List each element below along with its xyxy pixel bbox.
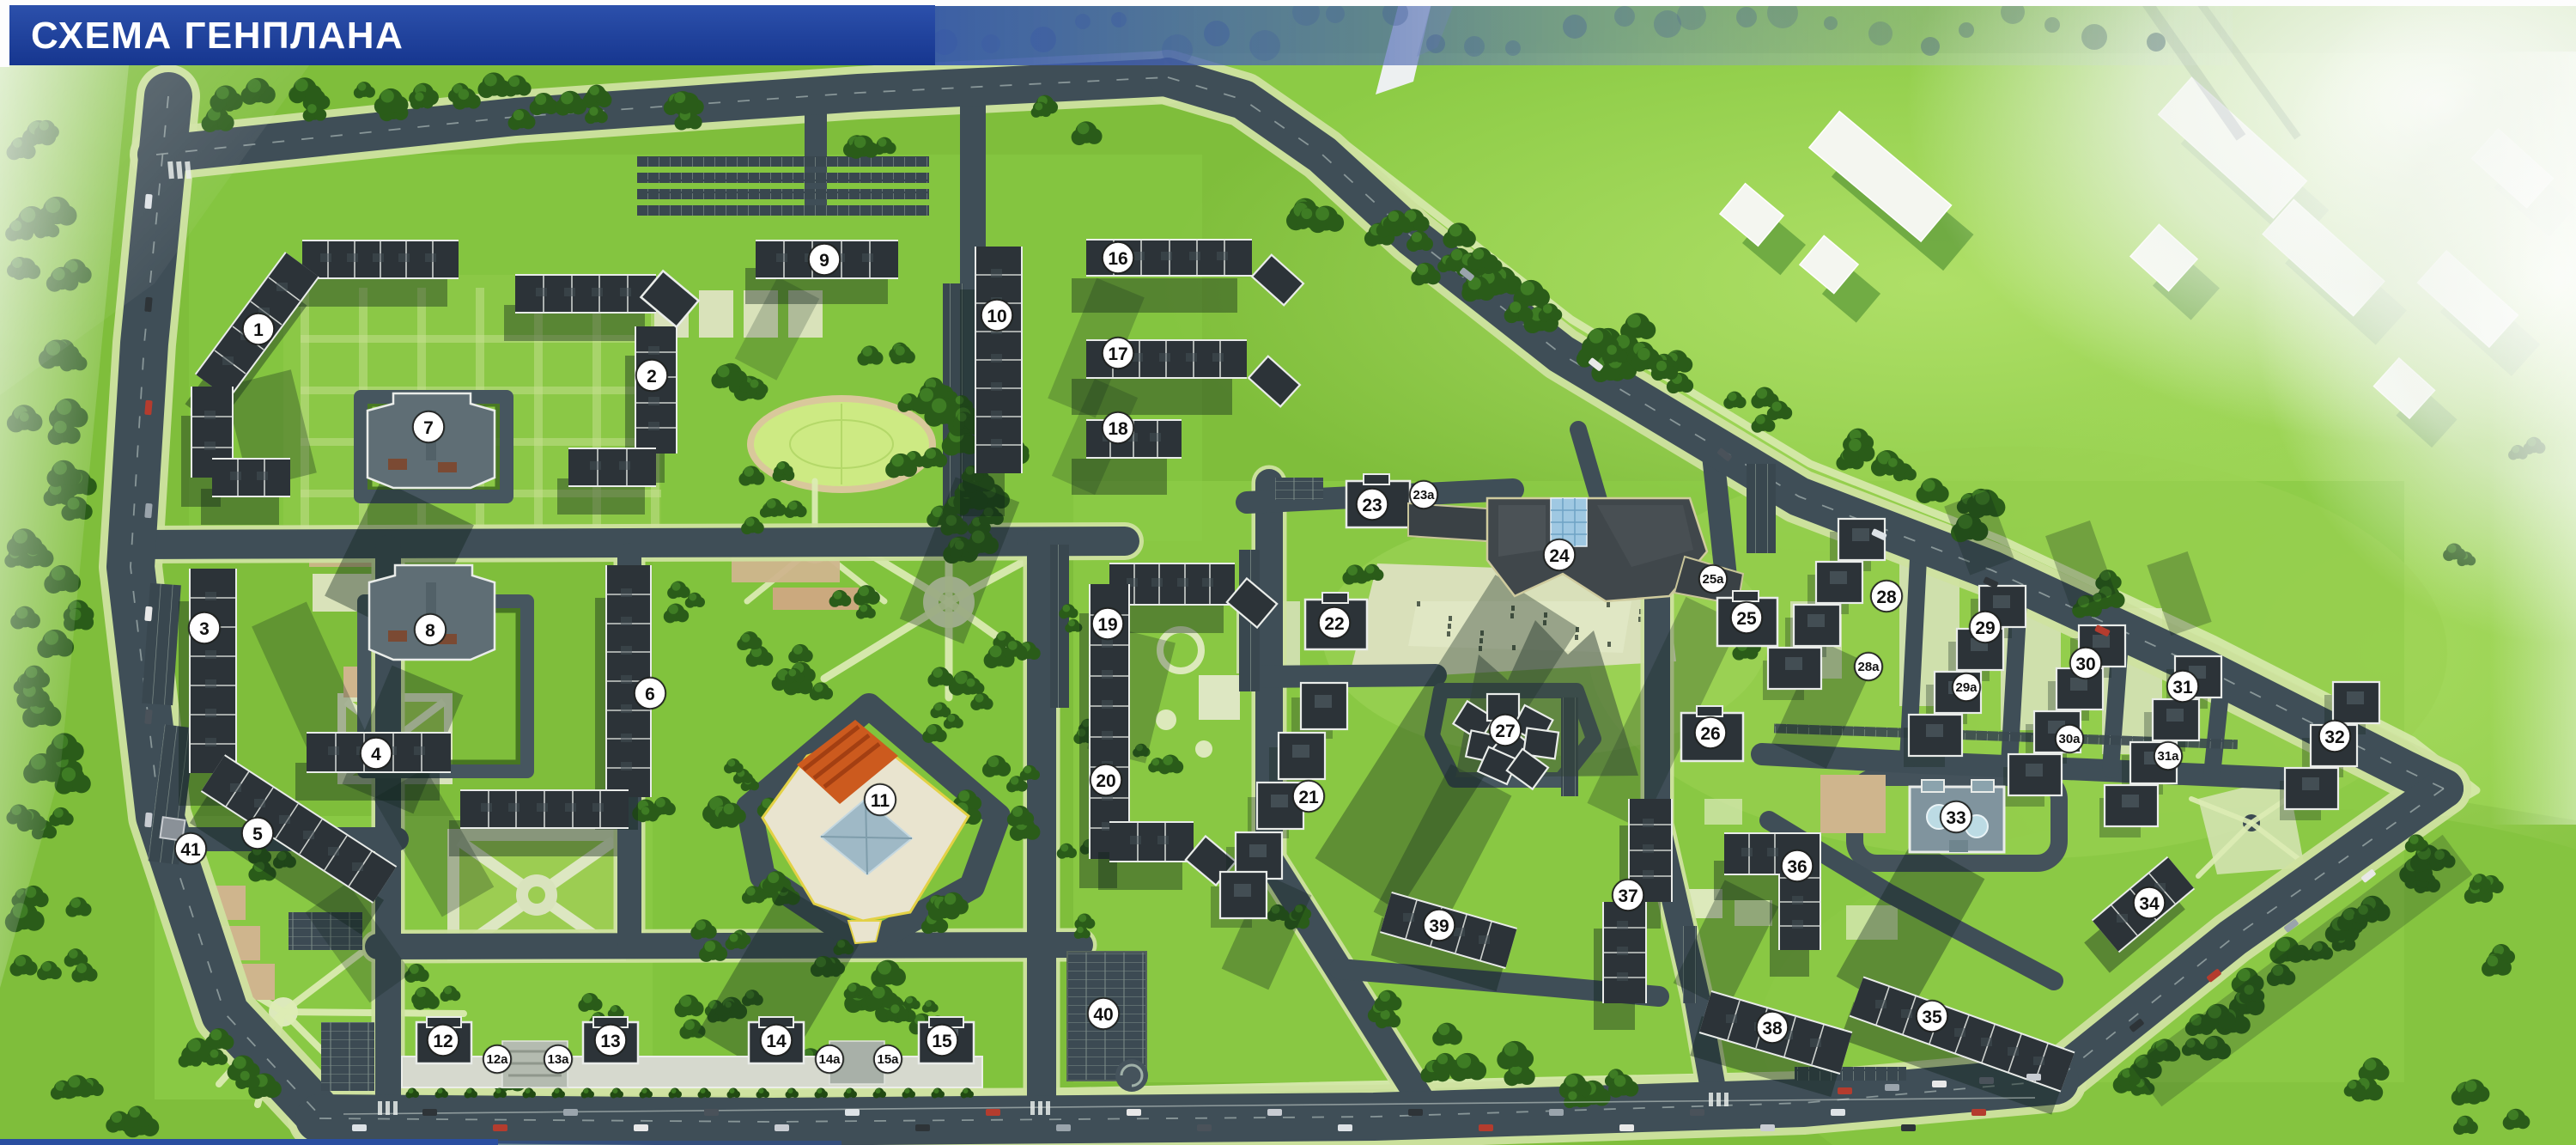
svg-text:24: 24 bbox=[1549, 546, 1570, 566]
svg-text:25: 25 bbox=[1736, 609, 1757, 629]
svg-text:13: 13 bbox=[600, 1032, 620, 1051]
svg-text:39: 39 bbox=[1429, 917, 1449, 936]
svg-text:23a: 23a bbox=[1413, 488, 1435, 502]
svg-text:19: 19 bbox=[1097, 615, 1117, 635]
svg-text:1: 1 bbox=[253, 320, 264, 340]
svg-text:29a: 29a bbox=[1955, 680, 1978, 695]
svg-text:28a: 28a bbox=[1857, 660, 1880, 674]
svg-text:12a: 12a bbox=[486, 1052, 508, 1067]
svg-text:9: 9 bbox=[819, 251, 829, 271]
svg-text:13a: 13a bbox=[547, 1052, 569, 1067]
svg-text:30a: 30a bbox=[2058, 732, 2081, 746]
svg-text:16: 16 bbox=[1108, 249, 1127, 269]
svg-text:40: 40 bbox=[1093, 1005, 1113, 1025]
svg-text:4: 4 bbox=[371, 745, 381, 764]
svg-text:28: 28 bbox=[1876, 588, 1897, 607]
svg-text:31: 31 bbox=[2172, 678, 2193, 697]
svg-text:36: 36 bbox=[1787, 857, 1807, 877]
svg-text:38: 38 bbox=[1762, 1019, 1783, 1038]
svg-text:22: 22 bbox=[1324, 614, 1344, 634]
svg-text:5: 5 bbox=[252, 825, 263, 844]
svg-text:3: 3 bbox=[199, 619, 210, 639]
svg-text:33: 33 bbox=[1946, 808, 1965, 828]
svg-text:7: 7 bbox=[423, 418, 434, 438]
svg-text:17: 17 bbox=[1108, 344, 1127, 364]
svg-text:18: 18 bbox=[1108, 419, 1128, 439]
svg-text:2: 2 bbox=[647, 367, 657, 387]
svg-text:31a: 31a bbox=[2157, 749, 2179, 764]
svg-text:10: 10 bbox=[987, 307, 1006, 326]
svg-text:37: 37 bbox=[1618, 886, 1637, 906]
svg-text:15: 15 bbox=[932, 1032, 952, 1051]
svg-text:27: 27 bbox=[1495, 722, 1515, 741]
svg-text:14: 14 bbox=[766, 1032, 787, 1051]
svg-text:СХЕМА ГЕНПЛАНА: СХЕМА ГЕНПЛАНА bbox=[31, 15, 404, 57]
svg-text:14a: 14a bbox=[818, 1052, 841, 1067]
svg-text:25a: 25a bbox=[1702, 572, 1724, 587]
svg-text:12: 12 bbox=[433, 1032, 453, 1051]
svg-text:26: 26 bbox=[1700, 724, 1720, 744]
svg-text:20: 20 bbox=[1096, 771, 1115, 791]
svg-text:21: 21 bbox=[1298, 788, 1319, 807]
svg-text:34: 34 bbox=[2139, 894, 2160, 914]
svg-text:35: 35 bbox=[1922, 1008, 1942, 1027]
svg-text:29: 29 bbox=[1975, 618, 1995, 638]
svg-text:6: 6 bbox=[645, 685, 655, 704]
svg-text:23: 23 bbox=[1362, 496, 1382, 515]
svg-text:41: 41 bbox=[180, 840, 201, 860]
svg-text:15a: 15a bbox=[877, 1052, 899, 1067]
svg-text:11: 11 bbox=[871, 791, 890, 811]
svg-text:8: 8 bbox=[425, 621, 435, 641]
svg-text:32: 32 bbox=[2324, 728, 2344, 747]
svg-text:30: 30 bbox=[2075, 655, 2095, 674]
